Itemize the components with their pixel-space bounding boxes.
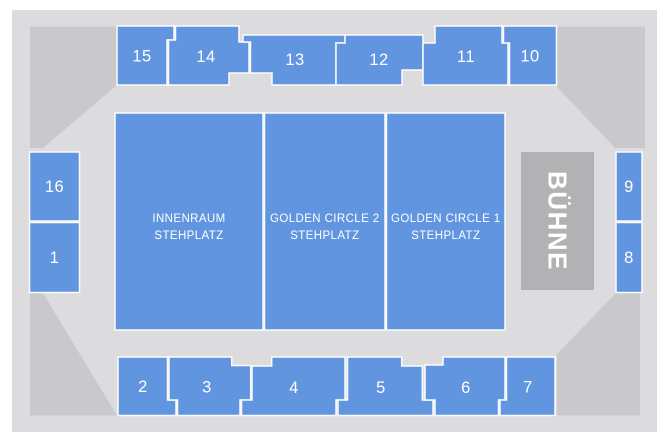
standing-area-golden-circle-2-label-line2: STEHPLATZ xyxy=(290,230,359,242)
section-7-label: 7 xyxy=(523,379,533,397)
section-4-label: 4 xyxy=(289,379,299,397)
section-12-label: 12 xyxy=(369,51,388,69)
section-14-label: 14 xyxy=(196,48,215,66)
section-11-label: 11 xyxy=(457,48,475,66)
section-1-label: 1 xyxy=(50,249,60,267)
standing-area-innenraum-label-line1: INNENRAUM xyxy=(152,213,225,225)
section-13-label: 13 xyxy=(285,51,304,69)
standing-area-innenraum-label-line2: STEHPLATZ xyxy=(154,230,223,242)
section-6-label: 6 xyxy=(461,379,471,397)
section-15-label: 15 xyxy=(132,48,151,66)
section-2-label: 2 xyxy=(138,378,148,396)
stage-label: BÜHNE xyxy=(543,171,573,271)
section-9-label: 9 xyxy=(624,178,634,196)
venue-seatmap: BÜHNE INNENRAUM STEHPLATZ GOLDEN CIRCLE … xyxy=(0,0,670,444)
section-5-label: 5 xyxy=(376,379,386,397)
section-8-label: 8 xyxy=(624,249,634,267)
section-10-label: 10 xyxy=(520,48,539,66)
standing-area-golden-circle-1-label-line1: GOLDEN CIRCLE 1 xyxy=(391,213,501,225)
seatmap-page: BÜHNE INNENRAUM STEHPLATZ GOLDEN CIRCLE … xyxy=(0,0,670,444)
section-16-label: 16 xyxy=(45,178,64,196)
standing-area-golden-circle-1-label-line2: STEHPLATZ xyxy=(411,230,480,242)
section-3-label: 3 xyxy=(202,379,212,397)
standing-area-golden-circle-2-label-line1: GOLDEN CIRCLE 2 xyxy=(270,213,380,225)
